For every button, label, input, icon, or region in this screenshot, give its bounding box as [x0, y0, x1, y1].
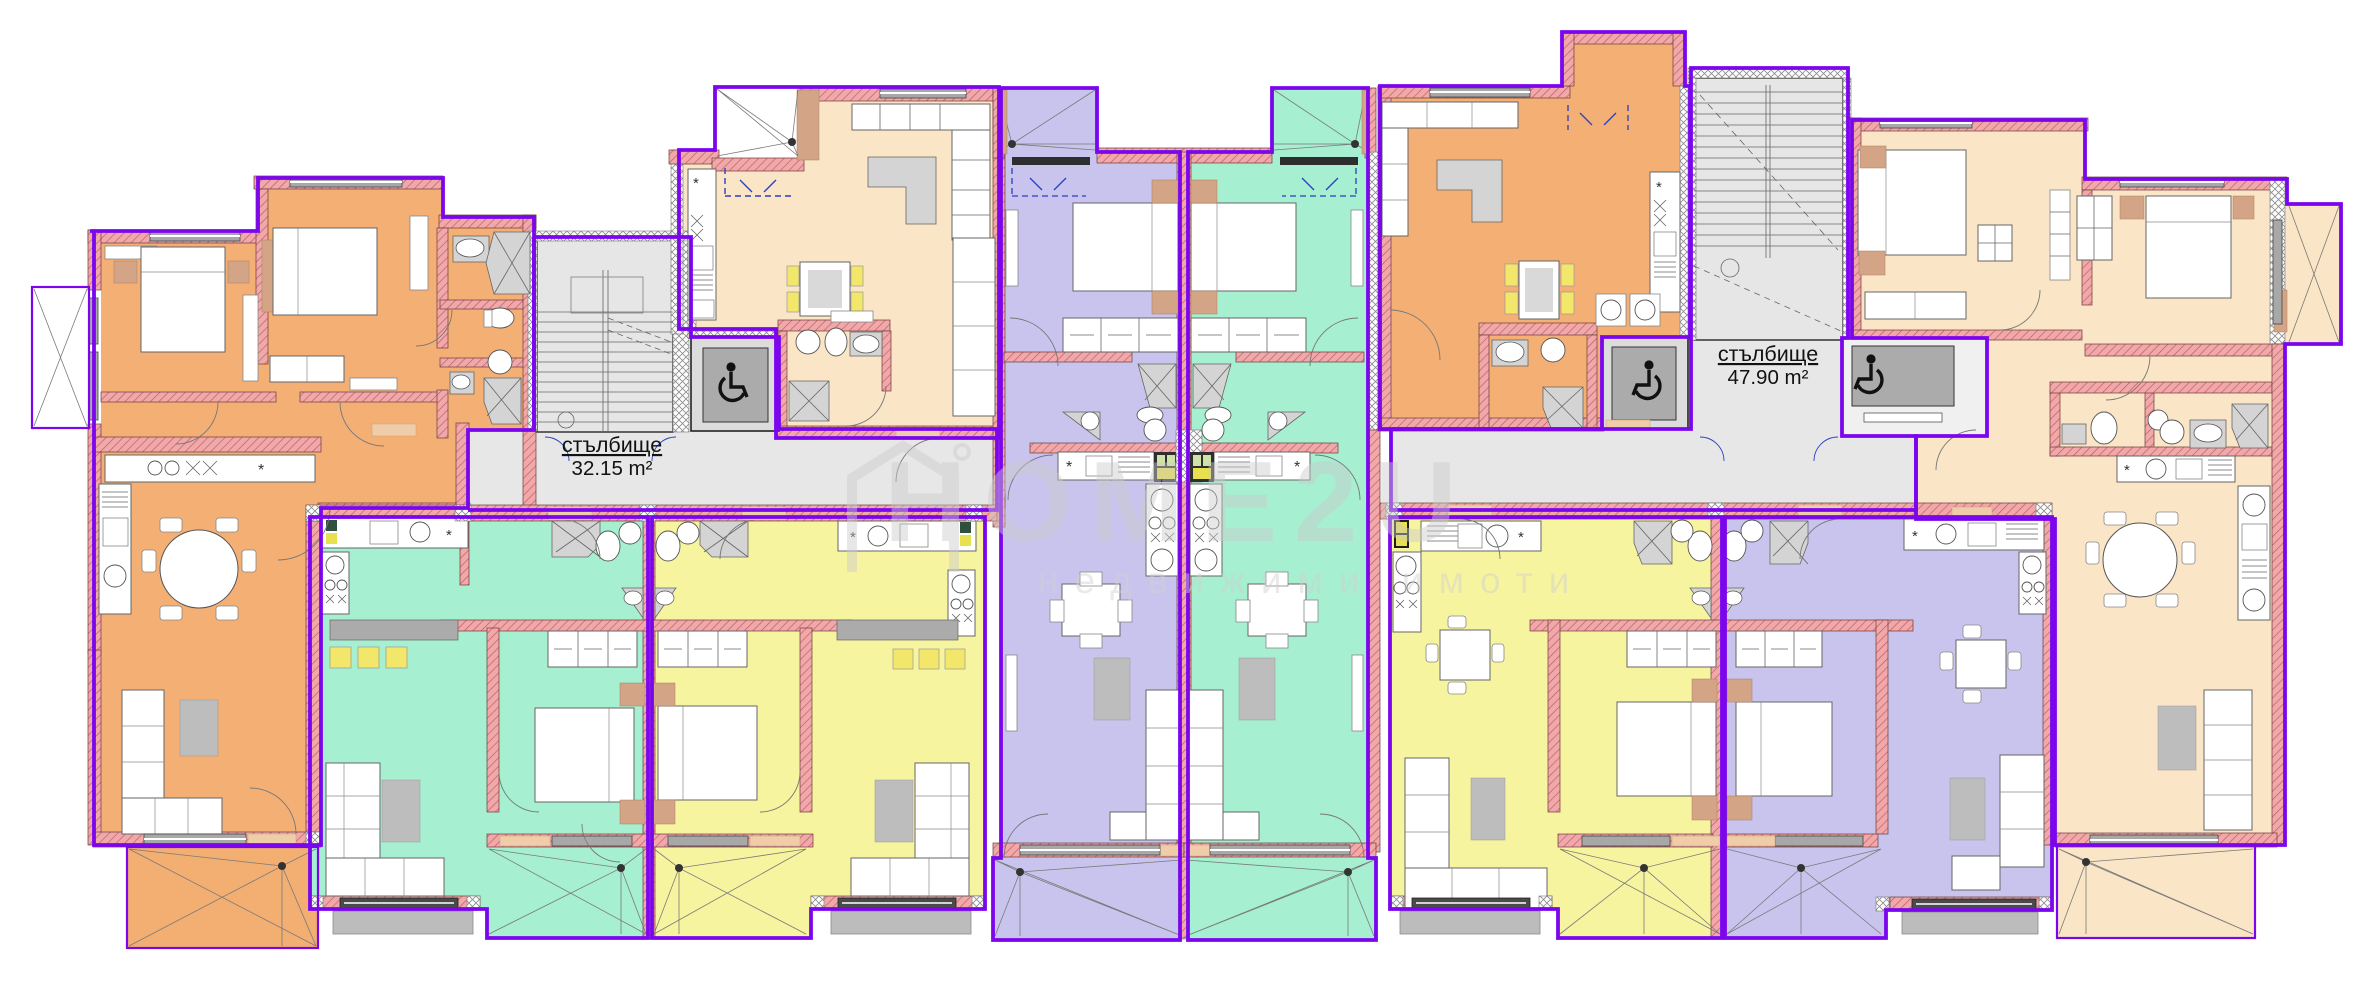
svg-text:HOME2U: HOME2U: [884, 439, 1474, 566]
svg-text:*: *: [446, 527, 452, 544]
svg-text:стълбище: стълбище: [562, 433, 662, 457]
svg-text:*: *: [1656, 179, 1662, 196]
svg-text:*: *: [258, 462, 264, 479]
svg-text:стълбище: стълбище: [1718, 342, 1818, 366]
svg-text:*: *: [1912, 528, 1918, 545]
svg-text:32.15 m²: 32.15 m²: [572, 457, 653, 480]
svg-text:*: *: [1518, 529, 1524, 546]
svg-text:*: *: [693, 175, 699, 192]
svg-text:*: *: [2124, 462, 2130, 479]
svg-text:47.90 m²: 47.90 m²: [1728, 366, 1809, 389]
svg-text:недвижими имоти: недвижими имоти: [1038, 560, 1585, 601]
